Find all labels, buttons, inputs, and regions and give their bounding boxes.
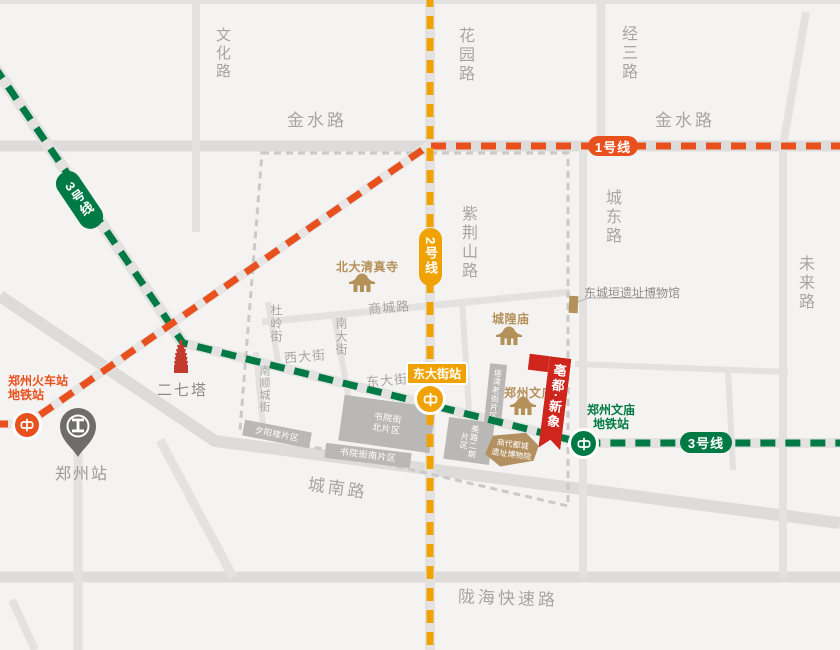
zhengzhou-station-pin <box>58 406 98 463</box>
road-label-chengdong: 城东路 <box>599 189 623 246</box>
temple-icon-chenghuang <box>494 323 524 352</box>
road-label-xidajie: 西大街 <box>283 344 327 367</box>
metro-lines-layer <box>0 0 840 650</box>
line1-pill: 1号线 <box>588 136 638 156</box>
line2-pill: 2号线 <box>419 228 442 286</box>
road-label-jinshui-w: 金水路 <box>287 106 347 131</box>
museum-marker-icon <box>569 296 579 313</box>
metro-station-icon-dongdajie <box>414 383 446 415</box>
road-label-wenhua: 文化路 <box>212 27 233 81</box>
project-banner-bar <box>528 354 550 372</box>
poi-label-erqi-tower: 二七塔 <box>157 379 208 400</box>
map-canvas[interactable]: 书院街北片区 书院街南片区 夕阳楼片区 美路二期片区 塔湾老街片区 商代都城 遗… <box>0 0 840 650</box>
road-label-jinshui-e: 金水路 <box>655 106 715 131</box>
metro-station-icon-railway <box>12 410 42 440</box>
line3-pill-east: 3号线 <box>680 432 732 453</box>
road-label-jingsan: 经三路 <box>615 25 639 82</box>
road-label-nandajie: 南大街 <box>333 317 350 356</box>
road-label-huayuan: 花园路 <box>452 27 476 84</box>
road-label-weilai: 未来路 <box>792 255 816 312</box>
zhengzhou-station-label: 郑州站 <box>55 460 109 484</box>
dongdajie-station-badge: 东大街站 <box>406 362 468 385</box>
erqi-tower-icon <box>169 340 193 383</box>
road-label-nanshuncheng: 南顺城街 <box>256 365 272 413</box>
zhengzhou-railway-metro-label: 郑州火车站 地铁站 <box>8 374 68 403</box>
wenmiao-metro-label: 郑州文庙 地铁站 <box>586 403 636 432</box>
metro-station-icon-wenmiao <box>568 428 599 459</box>
road-label-longhai: 陇海快速路 <box>458 582 559 610</box>
temple-icon-beida-mosque <box>347 270 377 299</box>
road-label-dongdajie: 东大街 <box>365 368 409 391</box>
poi-label-dongchengyuan-museum: 东城垣遗址博物馆 <box>584 284 680 301</box>
road-label-duling: 杜岭街 <box>268 304 285 343</box>
road-label-zijingshan: 紫荆山路 <box>455 205 479 281</box>
